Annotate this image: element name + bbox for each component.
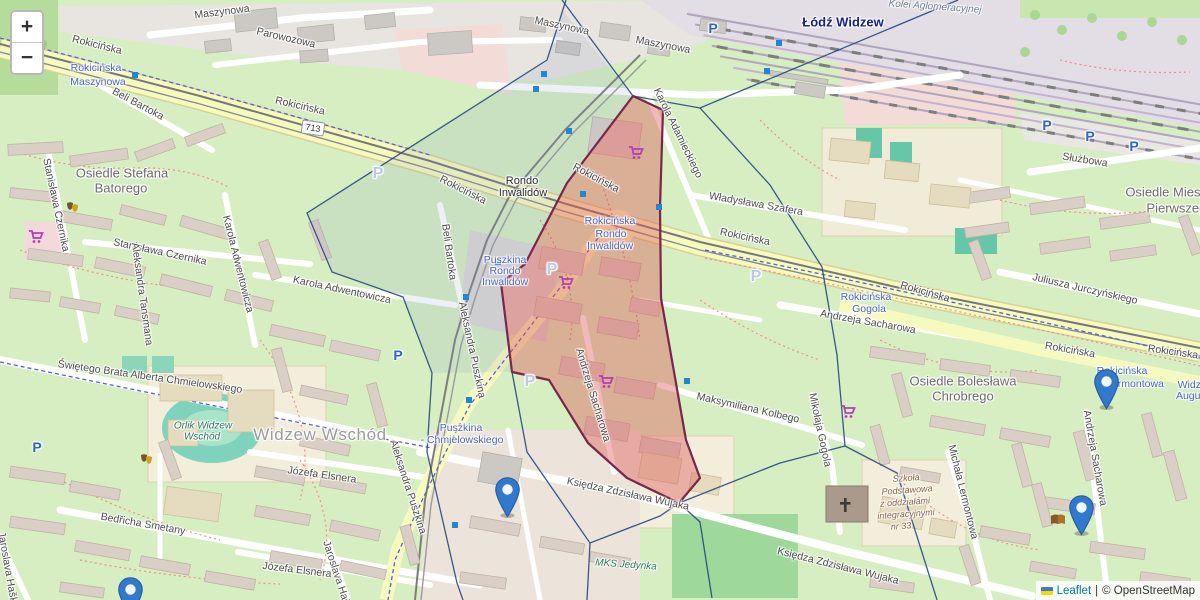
- transit-stop-square-icon: [495, 259, 501, 265]
- map-canvas[interactable]: RokicińskaRokicińskaRokicińskaRokicińska…: [0, 0, 1200, 600]
- transit-stop-square-icon: [463, 294, 469, 300]
- transit-stop-square-icon: [541, 71, 547, 77]
- boundary-line: [679, 446, 845, 503]
- zoom-in-button[interactable]: +: [12, 12, 42, 42]
- osm-attribution: © OpenStreetMap: [1102, 585, 1195, 597]
- zoom-out-button[interactable]: −: [12, 43, 42, 73]
- boundary-line: [700, 108, 845, 446]
- transit-stop-square-icon: [580, 191, 586, 197]
- transit-stop-square-icon: [132, 72, 138, 78]
- transit-stop-square-icon: [452, 522, 458, 528]
- boundary-line: [633, 0, 958, 108]
- transit-stop-square-icon: [533, 86, 539, 92]
- attribution-separator: |: [1095, 585, 1098, 597]
- transit-stop-square-icon: [656, 204, 662, 210]
- leaflet-link[interactable]: Leaflet: [1057, 585, 1092, 597]
- zones-overlay: [0, 0, 1200, 600]
- transit-stop-square-icon: [684, 378, 690, 384]
- transit-stop-square-icon: [776, 40, 782, 46]
- boundary-line: [587, 543, 590, 600]
- attribution-bar: Leaflet | © OpenStreetMap: [1036, 581, 1200, 600]
- boundary-line: [679, 503, 712, 598]
- boundary-line: [845, 446, 937, 600]
- transit-stop-square-icon: [466, 397, 472, 403]
- transit-stop-square-icon: [764, 68, 770, 74]
- zoom-control: + −: [10, 10, 44, 75]
- ukraine-flag-icon: [1041, 587, 1053, 595]
- transit-stop-square-icon: [566, 128, 572, 134]
